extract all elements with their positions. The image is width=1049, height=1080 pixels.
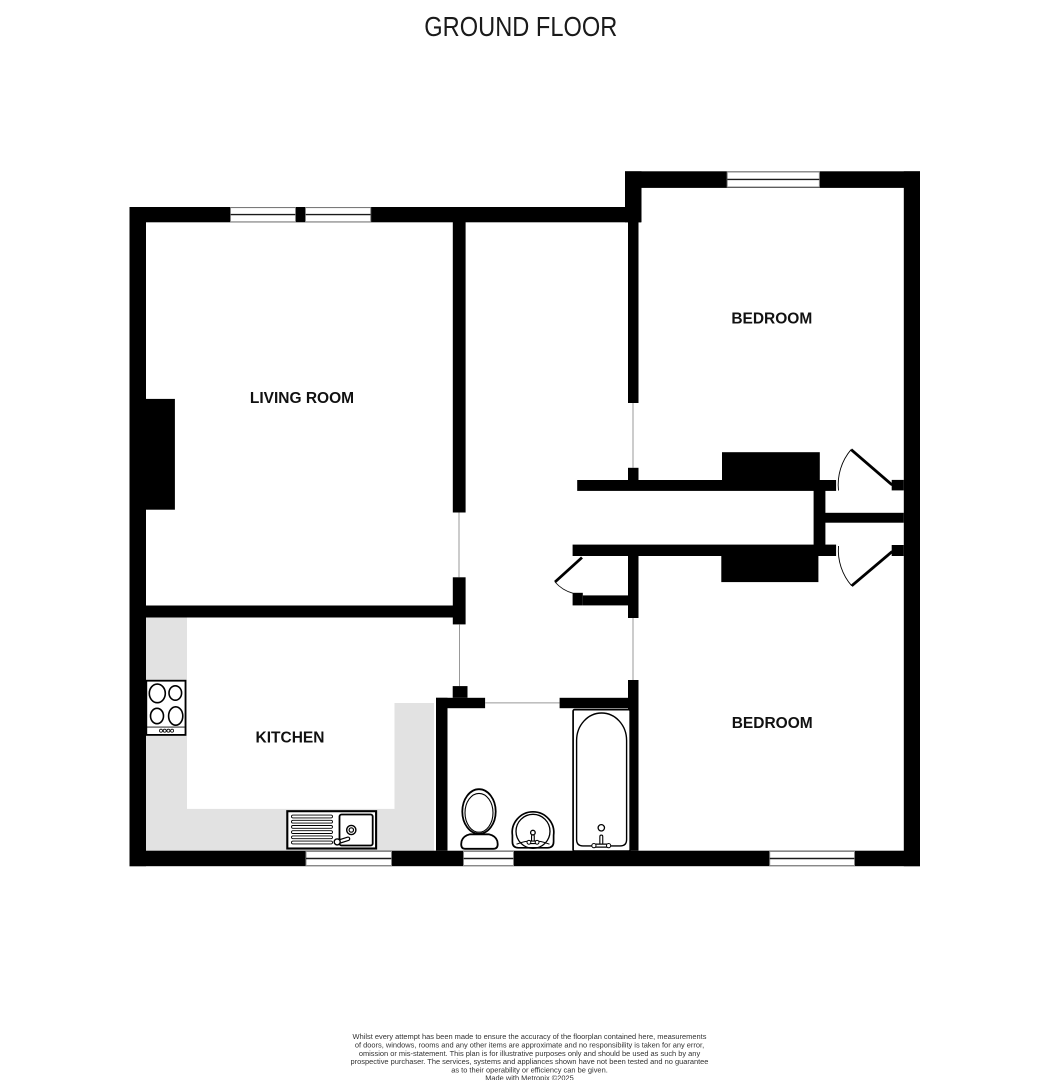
svg-text:GROUND FLOOR: GROUND FLOOR [424, 11, 617, 42]
svg-text:BEDROOM: BEDROOM [731, 310, 812, 327]
svg-text:KITCHEN: KITCHEN [256, 730, 325, 747]
svg-text:LIVING ROOM: LIVING ROOM [250, 390, 354, 407]
svg-text:BEDROOM: BEDROOM [732, 715, 813, 732]
svg-text:Made with Metropix ©2025: Made with Metropix ©2025 [485, 1073, 574, 1080]
